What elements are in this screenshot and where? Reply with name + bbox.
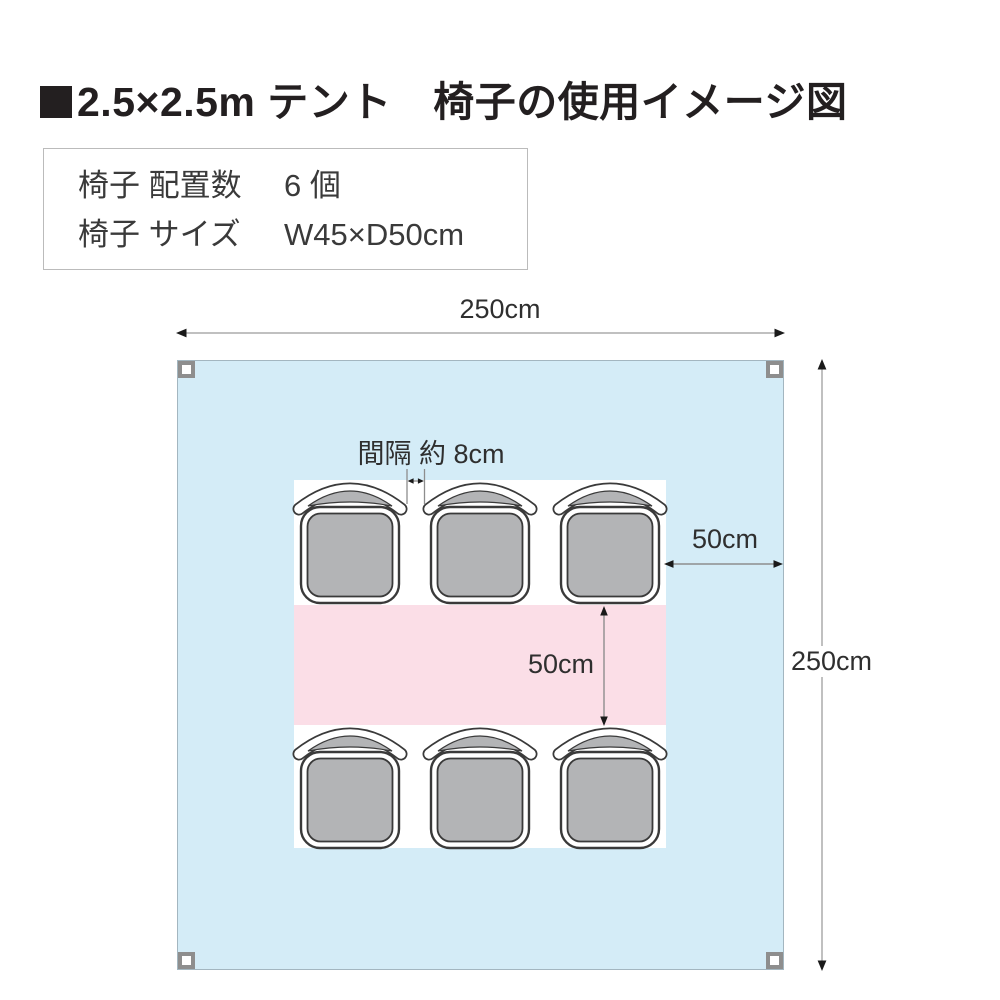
aisle-area	[294, 605, 666, 725]
chair	[292, 726, 408, 849]
chair-size-value: W45×D50cm	[284, 210, 464, 259]
chair-size-row: 椅子 サイズ W45×D50cm	[78, 210, 527, 259]
tent-leg-top-left	[178, 361, 195, 378]
chair	[552, 481, 668, 604]
tent-leg-bottom-right	[766, 952, 783, 969]
tent-width-arrow	[176, 329, 785, 338]
tent-chair-layout-figure: 2.5×2.5m テント 椅子の使用イメージ図 椅子 配置数 6 個 椅子 サイ…	[0, 0, 1000, 1000]
row-spacing-label: 50cm	[528, 649, 594, 680]
chair-count-row: 椅子 配置数 6 個	[78, 161, 527, 210]
tent-width-label: 250cm	[459, 294, 540, 325]
side-margin-label: 50cm	[692, 524, 758, 555]
chair-gap-label: 間隔 約 8cm	[357, 432, 504, 471]
chair	[422, 726, 538, 849]
tent-leg-top-right	[766, 361, 783, 378]
tent-leg-bottom-left	[178, 952, 195, 969]
tent-height-label: 250cm	[786, 646, 877, 677]
page-title-text: 2.5×2.5m テント 椅子の使用イメージ図	[77, 79, 847, 125]
chair	[422, 481, 538, 604]
chair-count-label: 椅子 配置数	[78, 161, 284, 210]
title-bullet-square-icon	[40, 86, 72, 118]
chair-count-value: 6 個	[284, 161, 341, 210]
chair-info-box: 椅子 配置数 6 個 椅子 サイズ W45×D50cm	[43, 148, 528, 270]
chair	[292, 481, 408, 604]
page-title: 2.5×2.5m テント 椅子の使用イメージ図	[40, 68, 847, 128]
chair	[552, 726, 668, 849]
chair-size-label: 椅子 サイズ	[78, 210, 284, 259]
